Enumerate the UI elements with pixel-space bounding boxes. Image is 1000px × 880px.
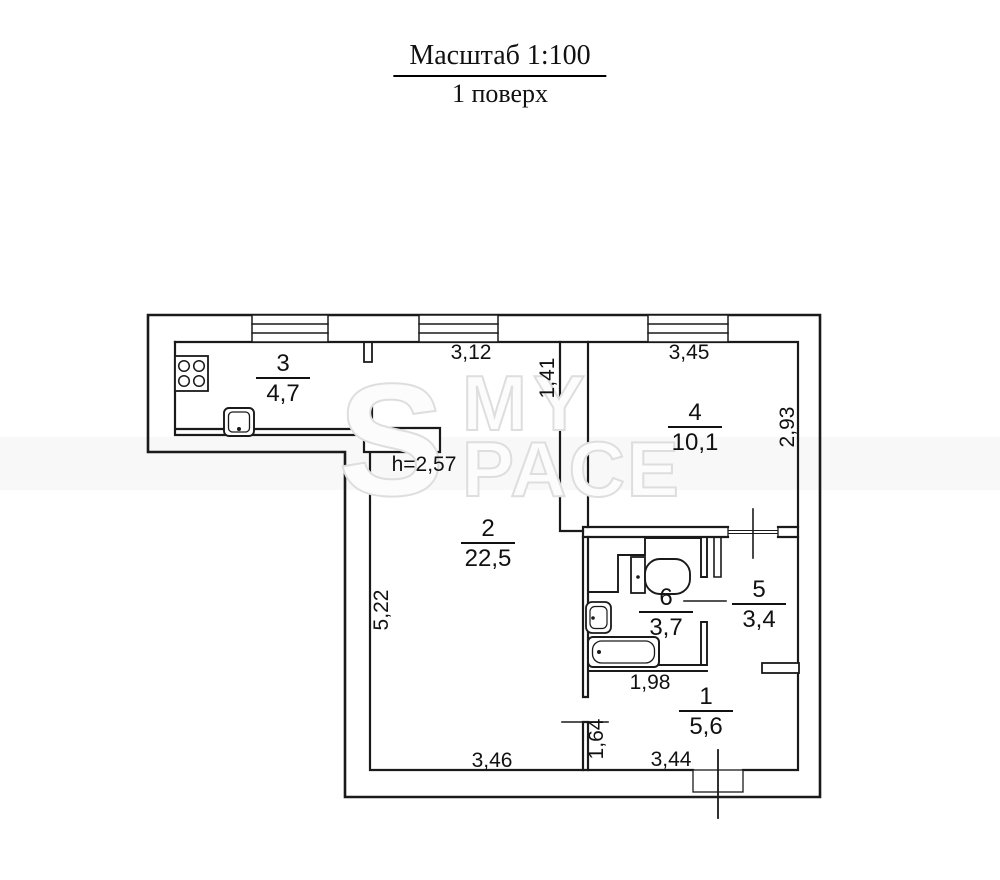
room-area: 10,1 bbox=[668, 428, 722, 458]
kitchen-divider-wall bbox=[364, 405, 440, 452]
door-jamb-stub bbox=[714, 537, 721, 577]
scale-title: Масштаб 1:100 bbox=[393, 40, 606, 77]
window-icon-middle bbox=[419, 315, 498, 342]
floor-plan-drawing bbox=[0, 0, 1000, 880]
room-area: 5,6 bbox=[679, 712, 733, 742]
room-label-hall: 1 5,6 bbox=[679, 684, 733, 742]
page-title: Масштаб 1:100 1 поверх bbox=[393, 40, 606, 109]
room-label-bedroom: 4 10,1 bbox=[668, 400, 722, 458]
window-icon-left bbox=[252, 315, 328, 342]
floor-plan-page: Масштаб 1:100 1 поверх bbox=[0, 0, 1000, 880]
room-area: 22,5 bbox=[461, 544, 515, 574]
room4-bottom-wall bbox=[583, 527, 798, 537]
dim-bathroom-width: 1,98 bbox=[630, 671, 671, 695]
room-number: 6 bbox=[639, 585, 693, 613]
window-icon-right bbox=[648, 315, 728, 342]
dim-room2-bottom-width: 3,46 bbox=[472, 749, 513, 773]
room-number: 4 bbox=[668, 400, 722, 428]
room-label-corridor: 5 3,4 bbox=[732, 577, 786, 635]
ceiling-height-note: h=2,57 bbox=[392, 453, 457, 477]
room4-left-wall bbox=[560, 342, 588, 531]
room-number: 5 bbox=[732, 577, 786, 605]
room-label-living: 2 22,5 bbox=[461, 516, 515, 574]
room-number: 3 bbox=[256, 351, 310, 379]
dim-room2-left-height: 5,22 bbox=[370, 590, 394, 631]
room5-stub-wall bbox=[762, 663, 799, 673]
room-area: 3,4 bbox=[732, 605, 786, 635]
room-label-kitchen: 3 4,7 bbox=[256, 351, 310, 409]
room-number: 2 bbox=[461, 516, 515, 544]
dim-kitchen-depth: 1,41 bbox=[536, 358, 560, 399]
bathroom-sink-icon bbox=[586, 602, 611, 633]
dim-room4-height: 2,93 bbox=[776, 407, 800, 448]
dim-room2-top-width: 3,12 bbox=[451, 341, 492, 365]
room-number: 1 bbox=[679, 684, 733, 712]
room-label-bathroom: 6 3,7 bbox=[639, 585, 693, 643]
stove-icon bbox=[175, 356, 208, 391]
dim-hall-left-height: 1,64 bbox=[585, 719, 609, 760]
kitchen-sink-icon bbox=[224, 408, 254, 436]
dim-room4-top-width: 3,45 bbox=[669, 341, 710, 365]
room-area: 3,7 bbox=[639, 613, 693, 643]
wall-stub bbox=[364, 342, 372, 362]
floor-title: 1 поверх bbox=[393, 79, 606, 109]
room-area: 4,7 bbox=[256, 379, 310, 409]
dim-hall-bottom-width: 3,44 bbox=[651, 748, 692, 772]
